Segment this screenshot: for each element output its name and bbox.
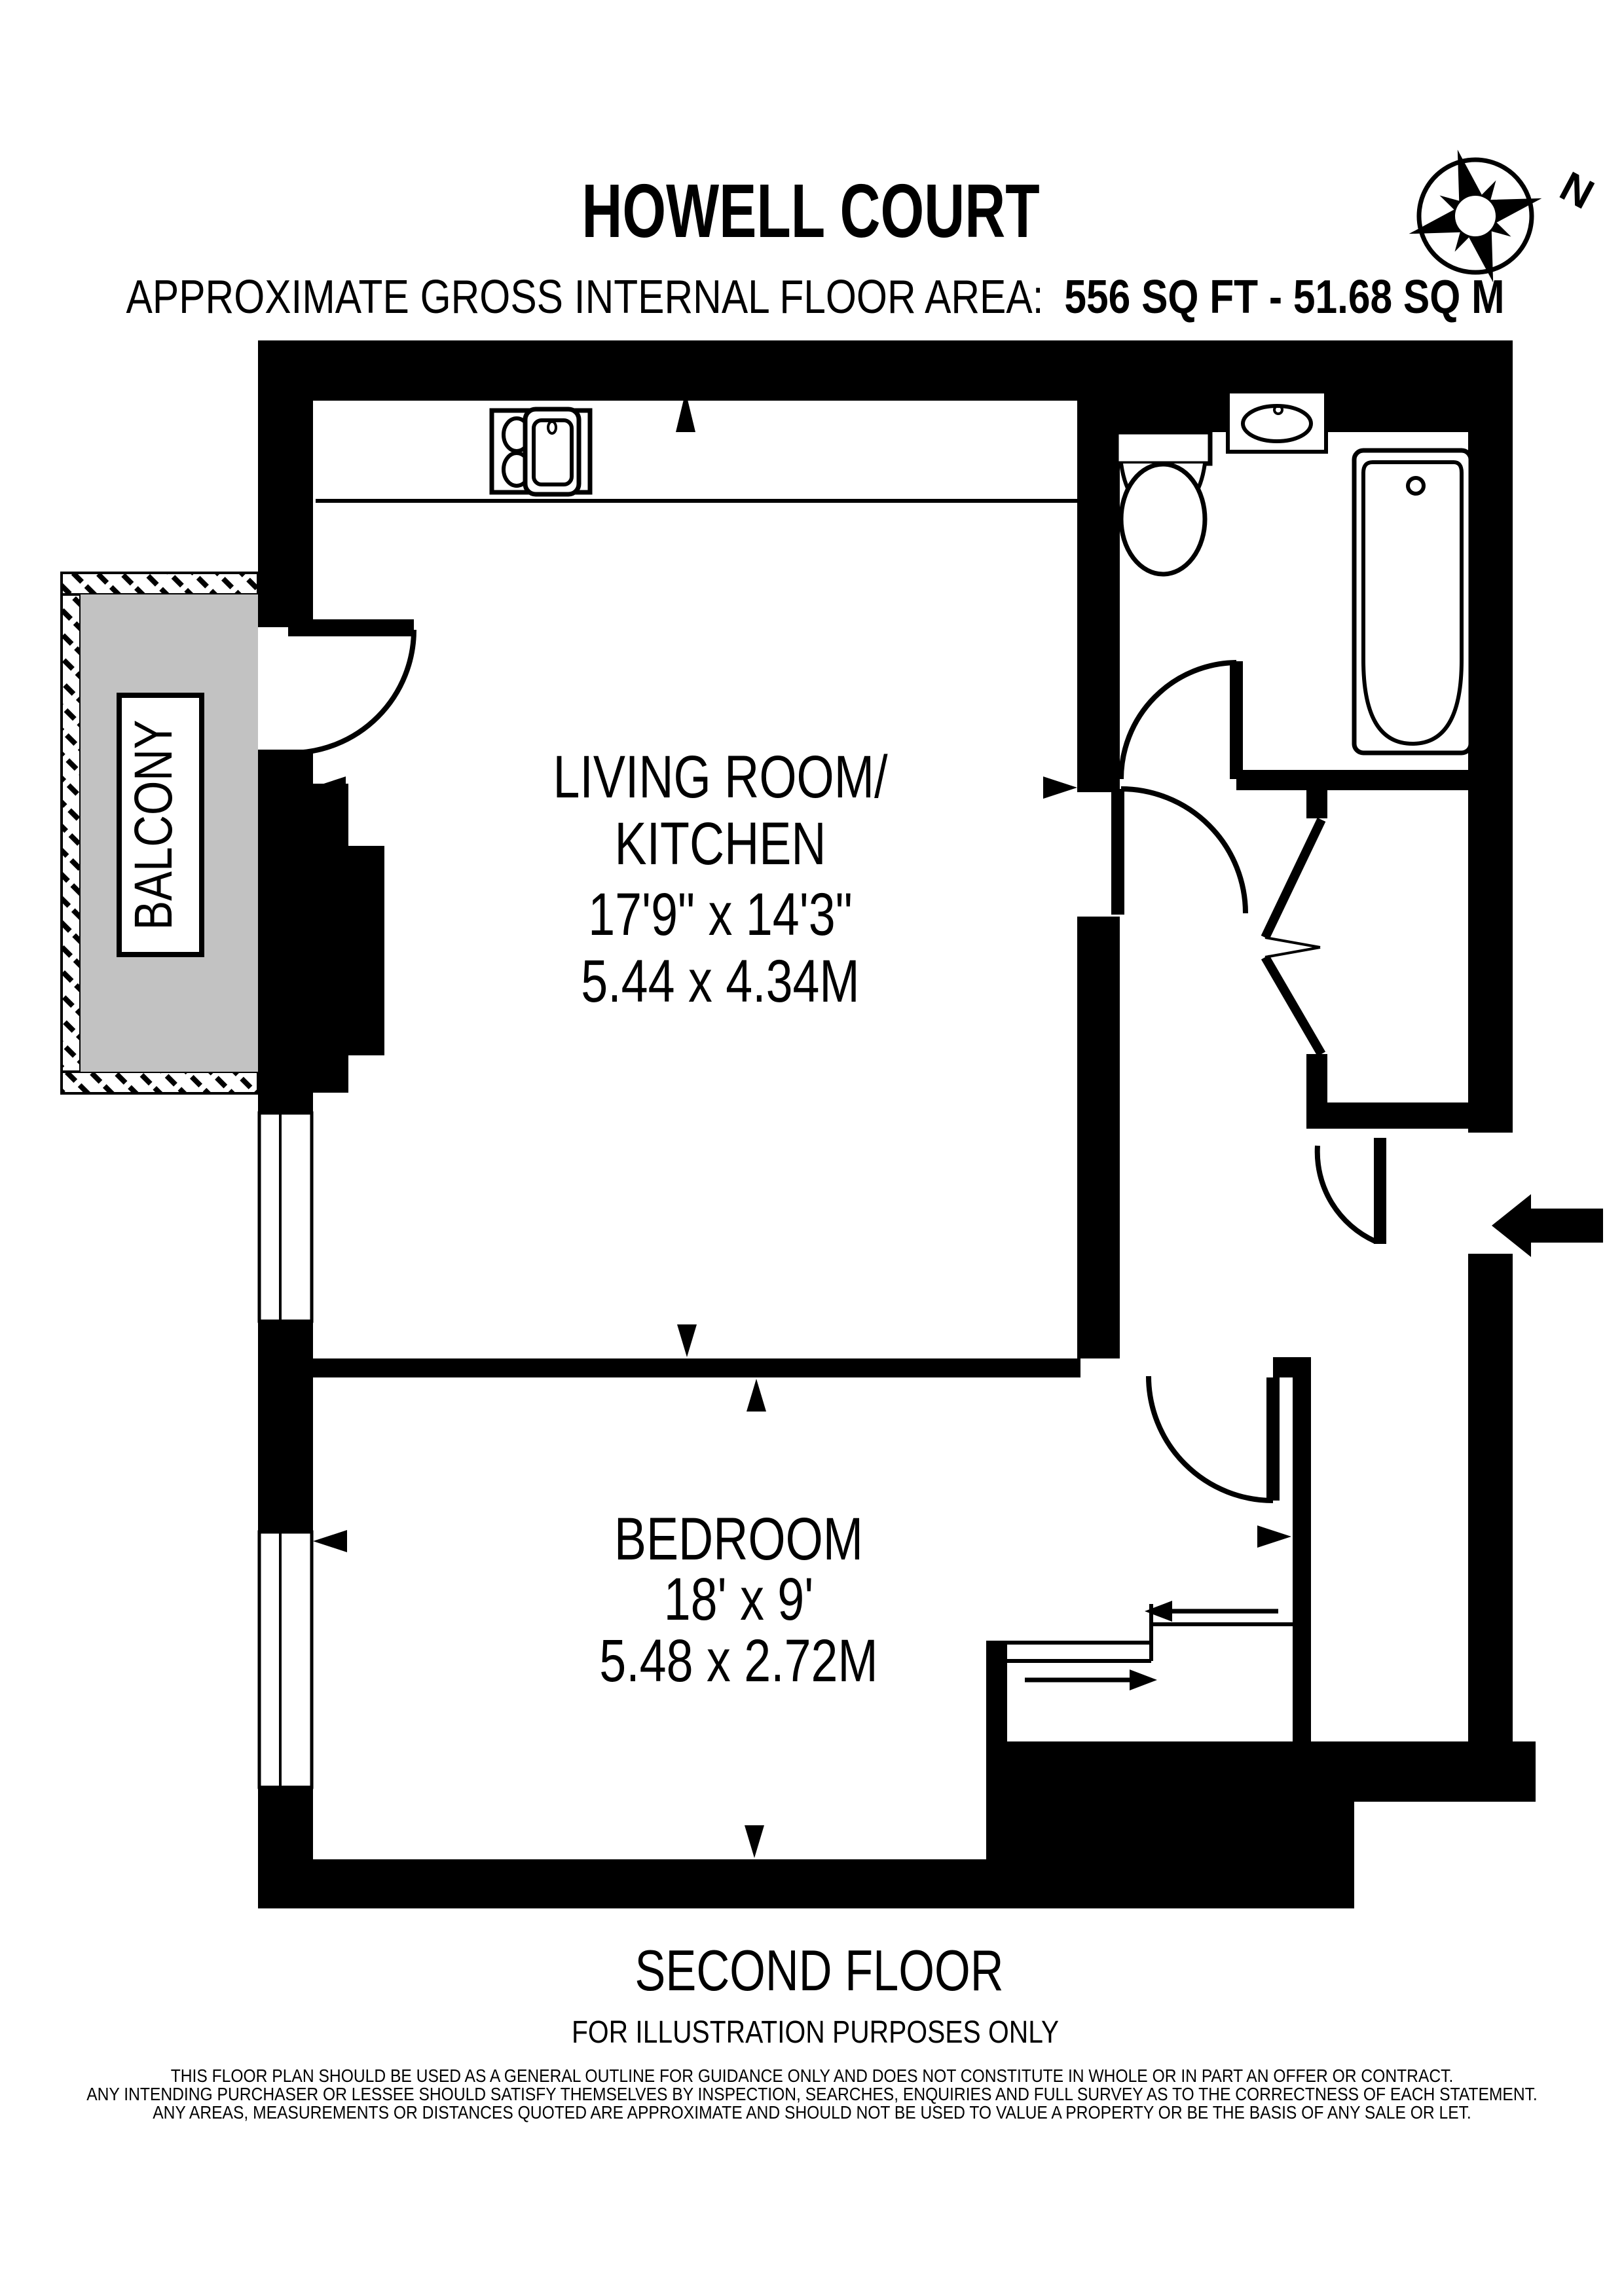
balcony: BALCONY [62, 573, 258, 1093]
bathroom-fixtures [1116, 392, 1471, 753]
toilet-icon [1116, 432, 1210, 574]
wall-closet-bottom [1306, 1102, 1468, 1129]
wall-left-step2 [258, 846, 384, 1055]
direction-arrow-down-icon [745, 1825, 764, 1858]
balcony-hatch-bottom [62, 1072, 258, 1093]
entry-arrow-icon [1492, 1194, 1603, 1257]
balcony-label: BALCONY [123, 720, 183, 930]
wall-left-step3 [258, 1055, 348, 1093]
wall-living-hall-lower [1077, 917, 1120, 1358]
wall-bedroom-bottom [258, 1859, 1007, 1908]
entry-door [1318, 1138, 1386, 1244]
header: HOWELL COURT APPROXIMATE GROSS INTERNAL … [126, 168, 1505, 323]
bedroom-label: BEDROOM 18' x 9' 5.48 x 2.72M [599, 1505, 877, 1694]
compass-north-label: N [1553, 162, 1602, 218]
wall-stair-landing [1293, 1377, 1311, 1741]
area-caption: APPROXIMATE GROSS INTERNAL FLOOR AREA: 5… [126, 271, 1505, 323]
walls [258, 340, 1536, 1908]
wall-living-hall-upper [1077, 401, 1120, 792]
living-room-name-line1: LIVING ROOM/ [553, 743, 888, 811]
wall-stair-block [1007, 1741, 1354, 1908]
wall-bedroom-door-stub [1273, 1357, 1311, 1377]
bathroom-door [1121, 661, 1243, 779]
illustration-note: FOR ILLUSTRATION PURPOSES ONLY [572, 2015, 1059, 2050]
footer: SECOND FLOOR FOR ILLUSTRATION PURPOSES O… [86, 1938, 1538, 2123]
bedroom-name: BEDROOM [614, 1505, 863, 1573]
disclaimer-line-3: ANY AREAS, MEASUREMENTS OR DISTANCES QUO… [153, 2102, 1471, 2123]
wall-closet-stub-top [1306, 779, 1327, 818]
bedroom-dims-imperial: 18' x 9' [664, 1565, 814, 1633]
bedroom-dims-metric: 5.48 x 2.72M [599, 1627, 877, 1694]
kitchen-fixtures [316, 392, 1077, 501]
room-labels: LIVING ROOM/ KITCHEN 17'9" x 14'3" 5.44 … [553, 743, 888, 1694]
balcony-hatch-top [62, 573, 258, 594]
wall-stair-left [986, 1643, 1007, 1859]
kitchen-sink-icon [525, 409, 579, 494]
direction-arrow-right-icon [1257, 1525, 1291, 1548]
living-room-door [1111, 789, 1246, 915]
direction-arrow-down-icon [677, 1324, 697, 1357]
wall-left-mid [258, 1093, 313, 1113]
stairs [986, 1601, 1293, 1690]
stair-arrow-up-icon [1145, 1601, 1278, 1622]
area-value: 556 SQ FT - 51.68 SQ M [1064, 271, 1504, 323]
wall-landing-bottom [1354, 1741, 1536, 1802]
direction-arrow-left-icon [313, 1530, 347, 1552]
stair-arrow-down-icon [1025, 1669, 1157, 1690]
wall-living-bedroom [309, 1358, 1080, 1377]
wall-closet-stub-bottom [1306, 1054, 1327, 1102]
wall-bathroom-bottom [1236, 770, 1468, 790]
living-room-label: LIVING ROOM/ KITCHEN 17'9" x 14'3" 5.44 … [553, 743, 888, 1015]
wall-right-upper [1468, 401, 1513, 1133]
living-room-window [259, 1113, 312, 1321]
wall-right-lower [1468, 1254, 1513, 1741]
wall-left-upper [258, 340, 313, 627]
living-room-dims-metric: 5.44 x 4.34M [581, 947, 859, 1015]
balcony-door [288, 619, 414, 753]
wall-left-between-windows [258, 1321, 313, 1532]
living-room-name-line2: KITCHEN [615, 810, 826, 877]
balcony-hatch-left [62, 573, 81, 1093]
bedroom-door [1149, 1376, 1280, 1501]
floor-plan: HOWELL COURT APPROXIMATE GROSS INTERNAL … [0, 0, 1624, 2296]
bedroom-window [259, 1532, 312, 1787]
bathtub-icon [1354, 450, 1471, 753]
living-room-dims-imperial: 17'9" x 14'3" [588, 881, 853, 948]
area-label: APPROXIMATE GROSS INTERNAL FLOOR AREA: [126, 271, 1044, 323]
floor-label: SECOND FLOOR [635, 1938, 1003, 2002]
wall-left-lowest [258, 1787, 313, 1859]
floorplan-page: HOWELL COURT APPROXIMATE GROSS INTERNAL … [0, 0, 1624, 2296]
page-title: HOWELL COURT [581, 168, 1039, 253]
direction-arrow-up-icon [747, 1379, 766, 1412]
basin-icon [1228, 392, 1326, 452]
direction-arrow-right-icon [1043, 776, 1077, 799]
closet-bifold-door [1265, 820, 1321, 1054]
